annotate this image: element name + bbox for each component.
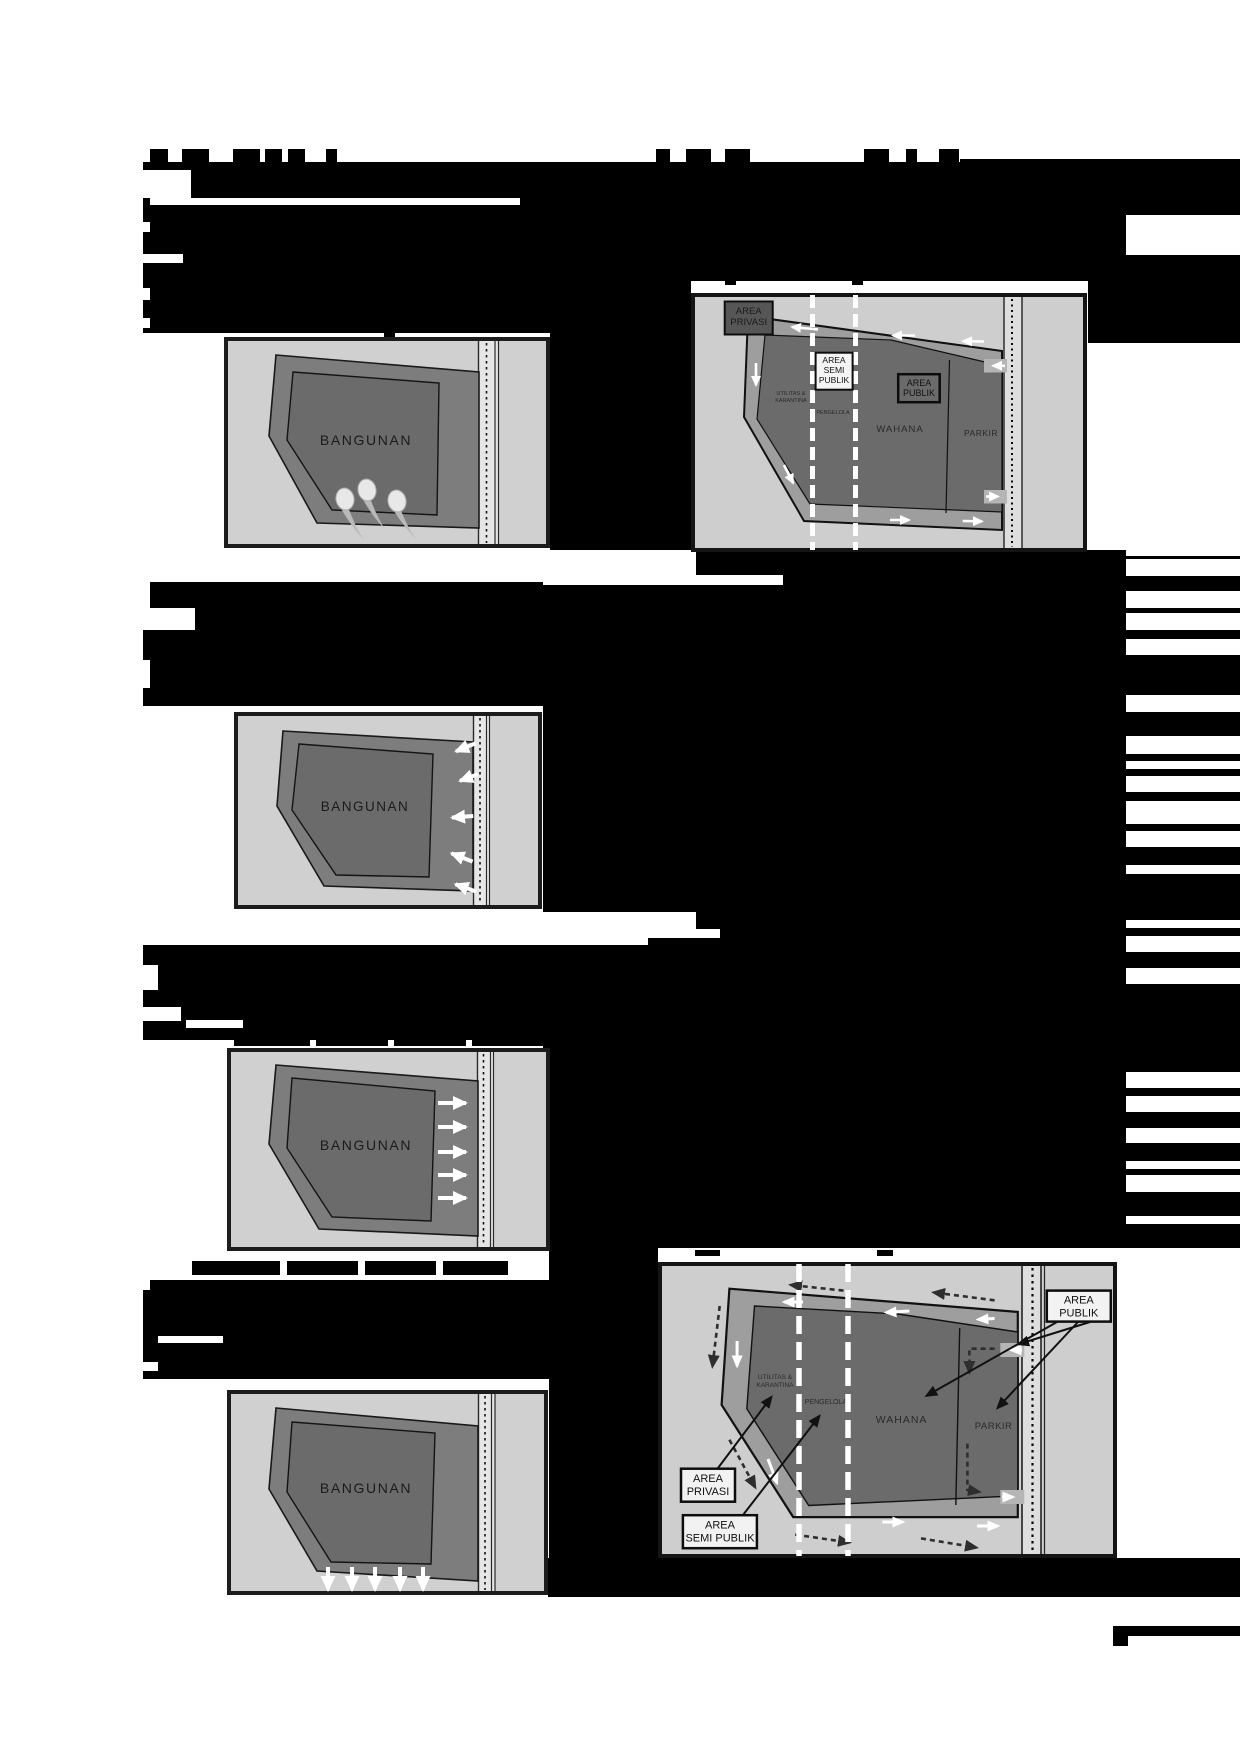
svg-text:PRIVASI: PRIVASI	[687, 1486, 730, 1498]
svg-text:AREA: AREA	[822, 355, 845, 365]
svg-text:WAHANA: WAHANA	[876, 424, 923, 435]
svg-text:BANGUNAN: BANGUNAN	[321, 799, 410, 814]
svg-text:AREA: AREA	[705, 1520, 736, 1532]
svg-text:AREA: AREA	[907, 378, 932, 388]
svg-text:AREA: AREA	[736, 306, 763, 317]
svg-text:PUBLIK: PUBLIK	[903, 388, 935, 398]
svg-text:SEMI PUBLIK: SEMI PUBLIK	[685, 1533, 755, 1545]
svg-text:PARKIR: PARKIR	[975, 1421, 1013, 1432]
svg-text:PENGELOLA: PENGELOLA	[816, 410, 850, 416]
svg-text:PUBLIK: PUBLIK	[819, 375, 850, 385]
svg-text:PRIVASI: PRIVASI	[730, 317, 767, 328]
svg-text:UTILITAS &: UTILITAS &	[777, 391, 806, 397]
svg-text:AREA: AREA	[693, 1473, 724, 1485]
svg-text:BANGUNAN: BANGUNAN	[320, 1480, 412, 1496]
svg-text:BANGUNAN: BANGUNAN	[320, 432, 412, 448]
svg-text:WAHANA: WAHANA	[876, 1414, 928, 1426]
svg-text:KARANTINA: KARANTINA	[756, 1382, 794, 1389]
svg-text:PENGELOLA: PENGELOLA	[805, 1399, 848, 1406]
svg-text:KARANTINA: KARANTINA	[775, 398, 807, 404]
svg-text:PUBLIK: PUBLIK	[1059, 1308, 1099, 1320]
svg-text:UTILITAS &: UTILITAS &	[758, 1374, 793, 1381]
svg-text:BANGUNAN: BANGUNAN	[320, 1137, 412, 1153]
svg-text:PARKIR: PARKIR	[964, 428, 998, 438]
svg-text:SEMI: SEMI	[824, 365, 845, 375]
svg-text:AREA: AREA	[1064, 1295, 1095, 1307]
